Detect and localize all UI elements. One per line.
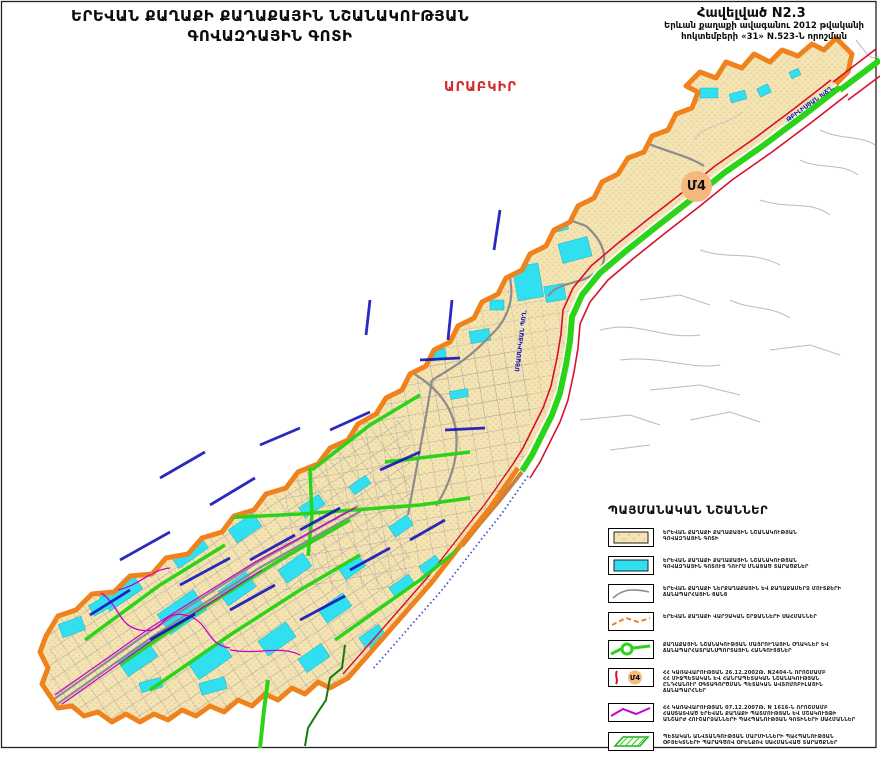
- legend-rows: ԵՐԵՎԱՆ ՔԱՂԱՔԻ ՔԱՂԱՔԱՅԻՆ ՆՇԱՆԱԿՈՒԹՅԱՆԳՈՎԱ…: [608, 528, 872, 751]
- legend-item-cyan-area: ԵՐԵՎԱՆ ՔԱՂԱՔԻ ՔԱՂԱՔԱՅԻՆ ՆՇԱՆԱԿՈՒԹՅԱՆԳՈՎԱ…: [608, 556, 872, 575]
- legend-item-line: ՃԱՆԱՊԱՐՀԱՅԻՆ ՑԱՆՑ: [663, 592, 841, 598]
- orange-dashed-swatch-icon: [608, 612, 654, 631]
- legend-item-magenta-line: ՀՀ ԿԱՌԱՎԱՐՈՒԹՅԱՆ 07.12.2007Թ. N 1616-Ն Ո…: [608, 703, 872, 723]
- map-sheet: ՄՅԱՍՆԻԿՅԱՆ ՊՈՂ.ԹԲԻԼԻՍՅԱՆ ԽՃՂ. ԵՐԵՎԱՆ ՔԱՂ…: [0, 0, 880, 753]
- legend-item-m4-road: Մ4ՀՀ ԿԱՌԱՎԱՐՈՒԹՅԱՆ 26.12.2002Թ. N2404-Ն …: [608, 668, 872, 694]
- cyan-area-swatch-icon: [608, 556, 654, 575]
- page-title-line1: ԵՐԵՎԱՆ ՔԱՂԱՔԻ ՔԱՂԱՔԱՅԻՆ ՆՇԱՆԱԿՈՒԹՅԱՆ: [40, 7, 500, 27]
- legend-item-label: ԵՐԵՎԱՆ ՔԱՂԱՔԻ ՎԱՐՉԱԿԱՆ ՇՐՋԱՆՆԵՐԻ ՍԱՀՄԱՆՆ…: [663, 612, 817, 620]
- legend-item-label: ՊԵՏԱԿԱՆ ԱՆՎՏԱՆԳՈՒԹՅԱՆ ՄԱՐՄԻՆՆԵՐԻ ՊԱՀՊԱՆՈ…: [663, 732, 838, 746]
- legend-title: ՊԱՅՄԱՆԱԿԱՆ ՆՇԱՆՆԵՐ: [608, 503, 872, 517]
- legend-item-line: ԵՐԵՎԱՆ ՔԱՂԱՔԻ ՎԱՐՉԱԿԱՆ ՇՐՋԱՆՆԵՐԻ ՍԱՀՄԱՆՆ…: [663, 614, 817, 620]
- legend-item-green-hatched: ՊԵՏԱԿԱՆ ԱՆՎՏԱՆԳՈՒԹՅԱՆ ՄԱՐՄԻՆՆԵՐԻ ՊԱՀՊԱՆՈ…: [608, 732, 872, 751]
- legend-item-label: ԵՐԵՎԱՆ ՔԱՂԱՔԻ ՆԵՐՔԱՂԱՔԱՅԻՆ ԵՎ ՔԱՂԱՔԱՄԵՐՁ…: [663, 584, 841, 598]
- appendix-note: Հավելված N2.3 Երևան քաղաքի ավագանու 2012…: [655, 6, 873, 42]
- legend-item-line: ԱՆՇԱՐԺ ՀՈՒՇԱՐՁԱՆՆԵՐԻ ՊԱՀՊԱՆՈՒԹՅԱՆ ԳՈՏԻՆԵ…: [663, 717, 855, 723]
- legend-item-label: ՀՀ ԿԱՌԱՎԱՐՈՒԹՅԱՆ 26.12.2002Թ. N2404-Ն ՈՐ…: [663, 668, 826, 694]
- appendix-line1: Երևան քաղաքի ավագանու 2012 թվականի: [655, 21, 873, 32]
- appendix-title: Հավելված N2.3: [655, 6, 873, 21]
- legend-item-line: ՕԲՅԵԿՏՆԵՐԻ ՊԱՐԱԳԾՈՎ ՕՐԵՆՔՈՎ ՍԱՀՄԱՆՎԱԾ ՏԱ…: [663, 740, 838, 746]
- gray-line-swatch-icon: [608, 584, 654, 603]
- magenta-line-swatch-icon: [608, 703, 654, 722]
- legend-item-label: ՀՀ ԿԱՌԱՎԱՐՈՒԹՅԱՆ 07.12.2007Թ. N 1616-Ն Ո…: [663, 703, 855, 723]
- page-title-line2: ԳՈՎԱԶԴԱՅԻՆ ԳՈՏԻ: [40, 27, 500, 47]
- legend-item-label: ՔԱՂԱՔԱՅԻՆ ՆՇԱՆԱԿՈՒԹՅԱՆ ՄԱՅՐՈՒՂԱՅԻՆ ՕՂԱԿՆ…: [663, 640, 829, 654]
- beige-area-swatch-icon: [608, 528, 654, 547]
- legend-item-orange-dashed: ԵՐԵՎԱՆ ՔԱՂԱՔԻ ՎԱՐՉԱԿԱՆ ՇՐՋԱՆՆԵՐԻ ՍԱՀՄԱՆՆ…: [608, 612, 872, 631]
- svg-text:Մ4: Մ4: [630, 674, 640, 682]
- legend-item-label: ԵՐԵՎԱՆ ՔԱՂԱՔԻ ՔԱՂԱՔԱՅԻՆ ՆՇԱՆԱԿՈՒԹՅԱՆԳՈՎԱ…: [663, 556, 809, 570]
- page-title: ԵՐԵՎԱՆ ՔԱՂԱՔԻ ՔԱՂԱՔԱՅԻՆ ՆՇԱՆԱԿՈՒԹՅԱՆ ԳՈՎ…: [40, 7, 500, 46]
- m4-road-badge: Մ4: [681, 171, 712, 202]
- legend: ՊԱՅՄԱՆԱԿԱՆ ՆՇԱՆՆԵՐ ԵՐԵՎԱՆ ՔԱՂԱՔԻ ՔԱՂԱՔԱՅ…: [608, 503, 872, 760]
- appendix-line2: հոկտեմբերի «31» N.523-Ն որոշման: [655, 32, 873, 43]
- m4-road-swatch-icon: Մ4: [608, 668, 654, 687]
- legend-item-green-loop: ՔԱՂԱՔԱՅԻՆ ՆՇԱՆԱԿՈՒԹՅԱՆ ՄԱՅՐՈՒՂԱՅԻՆ ՕՂԱԿՆ…: [608, 640, 872, 659]
- legend-item-gray-line: ԵՐԵՎԱՆ ՔԱՂԱՔԻ ՆԵՐՔԱՂԱՔԱՅԻՆ ԵՎ ՔԱՂԱՔԱՄԵՐՁ…: [608, 584, 872, 603]
- district-label-arabkir: ԱՐԱԲԿԻՐ: [444, 80, 517, 95]
- legend-item-line: ՃԱՆԱՊԱՐՀՆԵՐ: [663, 688, 826, 694]
- legend-item-line: ԳՈՎԱԶԴԱՅԻՆ ԳՈՏՈՒՑ ԴՈՒՐՍ ՄՆԱՑԱԾ ՏԱՐԱԾՔՆԵՐ: [663, 564, 809, 570]
- green-hatched-swatch-icon: [608, 732, 654, 751]
- legend-item-beige-area: ԵՐԵՎԱՆ ՔԱՂԱՔԻ ՔԱՂԱՔԱՅԻՆ ՆՇԱՆԱԿՈՒԹՅԱՆԳՈՎԱ…: [608, 528, 872, 547]
- legend-item-label: ԵՐԵՎԱՆ ՔԱՂԱՔԻ ՔԱՂԱՔԱՅԻՆ ՆՇԱՆԱԿՈՒԹՅԱՆԳՈՎԱ…: [663, 528, 797, 542]
- green-loop-swatch-icon: [608, 640, 654, 659]
- legend-item-line: ԳՈՎԱԶԴԱՅԻՆ ԳՈՏԻ: [663, 536, 797, 542]
- legend-item-line: ՃԱՆԱՊԱՐՀԱՏՐԱՆՍՊՈՐՏԱՅԻՆ ՀԱՆԳՈՒՅՑՆԵՐ: [663, 648, 829, 654]
